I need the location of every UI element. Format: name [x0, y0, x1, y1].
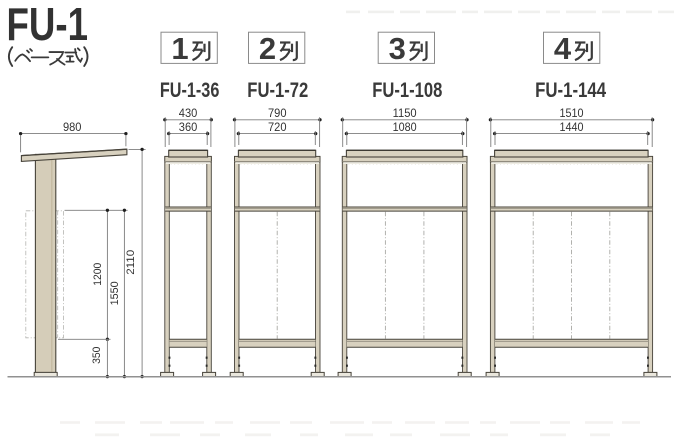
svg-text:1080: 1080 — [393, 121, 417, 134]
svg-text:3: 3 — [389, 31, 406, 66]
svg-text:FU-1-144: FU-1-144 — [535, 79, 606, 102]
svg-text:720: 720 — [268, 121, 287, 134]
svg-text:430: 430 — [179, 107, 198, 120]
svg-text:1: 1 — [171, 31, 188, 66]
svg-text:1510: 1510 — [560, 107, 584, 120]
svg-text:FU-1-72: FU-1-72 — [247, 79, 308, 102]
svg-text:1550: 1550 — [109, 281, 121, 305]
svg-text:FU-1: FU-1 — [7, 0, 89, 50]
svg-text:4: 4 — [554, 31, 572, 66]
svg-text:FU-1-108: FU-1-108 — [372, 79, 442, 102]
svg-text:790: 790 — [268, 107, 287, 120]
svg-text:350: 350 — [91, 347, 103, 364]
svg-text:2110: 2110 — [125, 250, 137, 275]
svg-text:2: 2 — [259, 31, 276, 66]
svg-text:1200: 1200 — [92, 263, 104, 286]
svg-text:360: 360 — [179, 121, 198, 134]
svg-text:1150: 1150 — [393, 107, 417, 120]
svg-text:980: 980 — [63, 121, 82, 134]
svg-text:FU-1-36: FU-1-36 — [160, 79, 220, 102]
svg-text:1440: 1440 — [560, 121, 584, 134]
